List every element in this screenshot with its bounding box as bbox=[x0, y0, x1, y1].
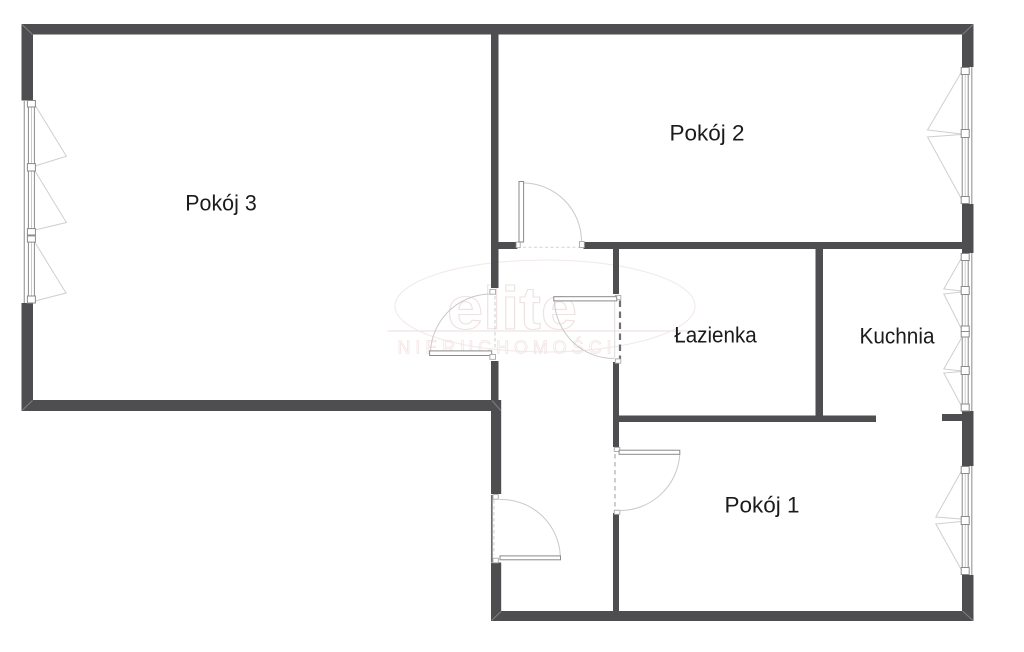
svg-text:Kuchnia: Kuchnia bbox=[860, 324, 935, 349]
svg-text:elite: elite bbox=[447, 275, 577, 342]
svg-text:Pokój 2: Pokój 2 bbox=[670, 121, 745, 146]
svg-text:Łazienka: Łazienka bbox=[674, 323, 757, 348]
svg-text:Pokój 3: Pokój 3 bbox=[185, 191, 257, 216]
svg-text:Pokój 1: Pokój 1 bbox=[725, 493, 800, 518]
